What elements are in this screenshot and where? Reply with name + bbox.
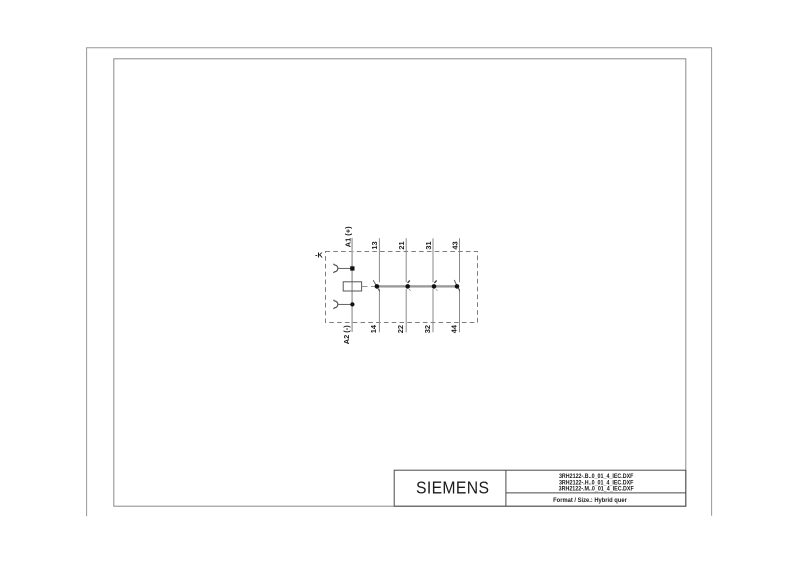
svg-text:A1 (+): A1 (+) <box>343 226 352 247</box>
svg-text:A2 (-): A2 (-) <box>342 325 351 344</box>
svg-text:-K: -K <box>315 250 323 259</box>
svg-text:Format / Size.: Hybrid quer: Format / Size.: Hybrid quer <box>553 497 627 504</box>
svg-text:32: 32 <box>423 325 432 333</box>
svg-text:14: 14 <box>369 324 378 333</box>
svg-text:44: 44 <box>449 324 458 333</box>
svg-text:21: 21 <box>397 241 406 249</box>
svg-text:3RH2122-.M..0_01_4_IEC.DXF: 3RH2122-.M..0_01_4_IEC.DXF <box>559 486 634 492</box>
svg-text:22: 22 <box>396 325 405 333</box>
svg-text:43: 43 <box>450 241 459 249</box>
svg-text:SIEMENS: SIEMENS <box>416 478 489 498</box>
svg-text:13: 13 <box>370 241 379 249</box>
svg-text:31: 31 <box>424 241 433 249</box>
